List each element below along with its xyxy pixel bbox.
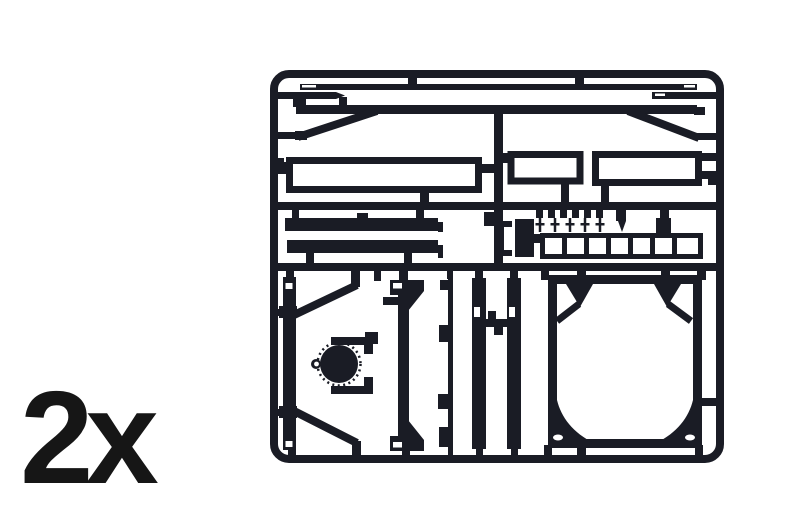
sprue-outer-frame — [274, 74, 720, 459]
wheel-disc — [320, 345, 358, 383]
part-toothed-wheel — [311, 332, 378, 394]
part-block-and-ladder — [484, 210, 703, 259]
part-rod-and-bars — [438, 271, 521, 457]
part-vertical-panel — [383, 271, 424, 457]
part-large-frame — [541, 271, 716, 456]
quantity-label: 2x — [20, 372, 151, 504]
part-top-strips — [278, 84, 716, 115]
part-flat-bars — [285, 210, 443, 264]
instruction-sheet: 2x — [0, 0, 800, 530]
part-small-pins — [536, 208, 627, 232]
